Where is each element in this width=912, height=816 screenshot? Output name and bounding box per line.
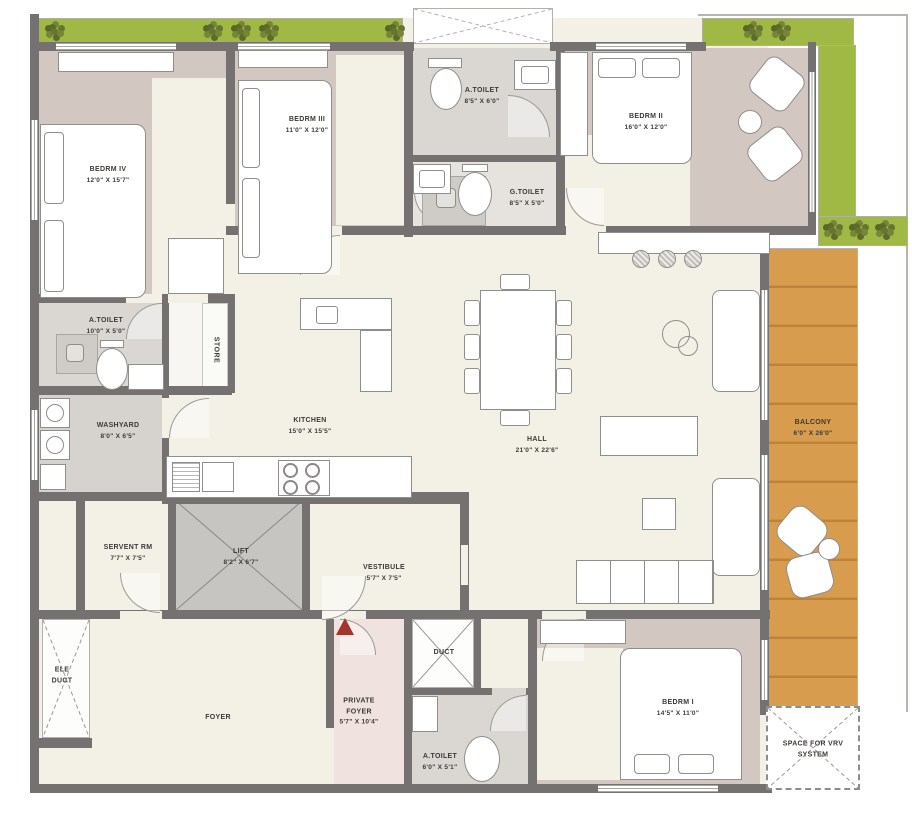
atoilet-bottom-label: A.TOILET 6'0" X 5'1" xyxy=(423,752,458,772)
window xyxy=(809,72,815,212)
door-gap xyxy=(168,294,208,303)
toilet xyxy=(458,172,492,216)
room-name: A.TOILET xyxy=(423,753,457,760)
plant-icon xyxy=(881,227,888,234)
room-dims: 5'7" X 10'4" xyxy=(331,718,387,728)
terrace-boundary-line xyxy=(906,15,908,712)
cross-lines xyxy=(414,9,552,43)
room-dims: 7'7" X 7'5" xyxy=(101,553,155,563)
planter-strip xyxy=(702,18,854,46)
atoilet-top-label: A.TOILET 8'5" X 6'0" xyxy=(465,86,500,106)
window xyxy=(761,455,768,590)
door-gap xyxy=(461,545,468,585)
toilet-tank xyxy=(428,58,462,68)
room-name: BEDRM I xyxy=(662,699,694,706)
vestibule-label: VESTIBULE 5'7" X 7'5" xyxy=(363,563,405,583)
room-name: WASHYARD xyxy=(97,422,140,429)
terrace-boundary-line xyxy=(698,14,908,16)
room-dims: 8'5" X 6'0" xyxy=(465,96,500,106)
room-dims: 5'7" X 7'5" xyxy=(363,573,405,583)
room-name: A.TOILET xyxy=(89,317,123,324)
sink xyxy=(128,364,164,390)
store-label: STORE xyxy=(213,337,220,364)
wall xyxy=(302,501,310,618)
dining-chair xyxy=(464,368,480,394)
dining-chair xyxy=(556,300,572,326)
wall xyxy=(76,492,85,620)
washer-drum xyxy=(46,436,64,454)
washer-drum xyxy=(46,404,64,422)
room-name: A.TOILET xyxy=(465,87,499,94)
room-dims: 6'0" X 26'0" xyxy=(794,428,833,438)
burner xyxy=(283,480,298,495)
room-dims: 12'0" X 15'7" xyxy=(87,175,130,185)
duct-label: DUCT xyxy=(434,648,455,659)
gtoilet-label: G.TOILET 8'5" X 5'0" xyxy=(510,188,545,208)
toilet xyxy=(430,68,462,110)
room-dims: 16'0" X 12'0" xyxy=(625,122,668,132)
window xyxy=(31,410,38,480)
pillow xyxy=(642,58,680,78)
pillow xyxy=(44,220,64,292)
lift-label: LIFT 8'2" X 6'7" xyxy=(224,547,259,567)
wardrobe xyxy=(168,238,224,294)
bar-stool xyxy=(684,250,702,268)
plant-icon xyxy=(51,28,58,35)
side-table xyxy=(738,110,762,134)
room-dims: 14'5" X 11'0" xyxy=(657,708,699,718)
tv-unit xyxy=(576,560,714,604)
dresser xyxy=(540,620,626,644)
room-dims: 8'5" X 5'0" xyxy=(510,198,545,208)
window xyxy=(596,43,686,50)
dining-chair xyxy=(556,334,572,360)
dining-table xyxy=(480,290,556,410)
ele-duct-label: ELE DUCT xyxy=(45,666,79,687)
balcony-deck xyxy=(766,248,858,708)
bedrm4-label: BEDRM IV 12'0" X 15'7" xyxy=(87,165,130,185)
room-name: LIFT xyxy=(233,548,249,555)
room-name: FOYER xyxy=(205,714,231,721)
private-foyer-label: PRIVATE FOYER 5'7" X 10'4" xyxy=(331,697,387,728)
burner xyxy=(283,463,298,478)
plant-icon xyxy=(829,227,836,234)
wall xyxy=(404,618,412,786)
sink xyxy=(412,696,438,732)
wall xyxy=(474,618,481,692)
foyer-label: FOYER xyxy=(205,713,231,724)
window xyxy=(56,43,176,50)
room-name: STORE xyxy=(213,337,220,364)
dining-chair xyxy=(464,300,480,326)
atoilet-left-label: A.TOILET 10'0" X 5'0" xyxy=(87,316,126,336)
room-dims: 6'0" X 5'1" xyxy=(423,762,458,772)
bar-stool xyxy=(658,250,676,268)
kitchen-cabinet xyxy=(360,330,392,392)
toilet xyxy=(464,736,500,782)
pillow xyxy=(44,132,64,204)
dining-chair xyxy=(556,368,572,394)
window xyxy=(761,290,768,420)
shower-head xyxy=(66,344,84,362)
plant-icon xyxy=(265,28,272,35)
balcony-table xyxy=(818,538,840,560)
kitchen-sink xyxy=(202,462,234,492)
room-dims: 8'0" X 6'5" xyxy=(97,431,140,441)
room-dims: 8'2" X 6'7" xyxy=(224,557,259,567)
room-name: ELE DUCT xyxy=(52,667,73,685)
bedrm3-label: BEDRM III 11'0" X 12'0" xyxy=(286,115,328,135)
door-gap xyxy=(542,611,586,619)
window xyxy=(761,640,768,700)
wall xyxy=(404,226,565,235)
room-dims: 21'0" X 22'6" xyxy=(516,445,559,455)
burner xyxy=(305,480,320,495)
room-dims: 10'0" X 5'0" xyxy=(87,326,126,336)
vrv-label: SPACE FOR VRV SYSTEM xyxy=(780,740,846,761)
wall xyxy=(168,501,176,618)
room-name: VESTIBULE xyxy=(363,564,405,571)
dining-chair xyxy=(500,274,530,290)
room-name: SERVENT RM xyxy=(104,544,153,551)
floor-plan: BEDRM IV 12'0" X 15'7" BEDRM III 11'0" X… xyxy=(0,0,912,816)
entry-arrow-icon xyxy=(336,618,354,635)
washyard-label: WASHYARD 8'0" X 6'5" xyxy=(97,421,140,441)
sofa xyxy=(712,290,760,392)
kitchen-label: KITCHEN 15'0" X 15'5" xyxy=(289,416,332,436)
room-name: BEDRM III xyxy=(289,116,325,123)
room-name: PRIVATE FOYER xyxy=(343,698,374,716)
dresser xyxy=(58,52,174,72)
burner xyxy=(305,463,320,478)
counter-sink xyxy=(316,306,338,324)
wardrobe xyxy=(560,52,588,156)
coffee-table xyxy=(600,416,698,456)
door-gap xyxy=(162,398,169,438)
bedrm3-rug xyxy=(336,55,406,225)
servant-label: SERVENT RM 7'7" X 7'5" xyxy=(101,543,155,563)
planter-strip xyxy=(38,18,403,45)
room-dims: 15'0" X 15'5" xyxy=(289,426,332,436)
dining-chair xyxy=(464,334,480,360)
wall xyxy=(30,492,170,501)
wall xyxy=(38,738,92,748)
bedrm1-rug xyxy=(537,648,623,780)
hall-label: HALL 21'0" X 22'6" xyxy=(516,435,559,455)
sink-basin xyxy=(521,66,549,84)
sink-drainboard xyxy=(172,462,200,492)
bedrm2-label: BEDRM II 16'0" X 12'0" xyxy=(625,112,668,132)
decor-circle xyxy=(678,336,698,356)
room-name: BALCONY xyxy=(795,419,832,426)
plant-icon xyxy=(209,28,216,35)
side-table xyxy=(642,498,676,530)
pillow xyxy=(242,178,260,258)
bar-stool xyxy=(632,250,650,268)
passage-floor xyxy=(169,303,202,387)
window xyxy=(238,43,330,50)
room-name: BEDRM IV xyxy=(90,166,127,173)
sofa xyxy=(712,478,760,576)
window xyxy=(31,120,38,220)
wall xyxy=(404,42,413,237)
open-duct xyxy=(413,8,553,44)
sink-basin xyxy=(419,170,445,188)
toilet-tank xyxy=(462,164,488,172)
pillow xyxy=(678,754,714,774)
bar-counter xyxy=(598,232,770,254)
door-gap xyxy=(492,688,526,695)
bedrm1-label: BEDRM I 14'5" X 11'0" xyxy=(657,698,699,718)
wall xyxy=(528,618,537,786)
plant-icon xyxy=(855,227,862,234)
window xyxy=(598,785,718,792)
dining-chair xyxy=(500,410,530,426)
planter-strip xyxy=(818,45,856,217)
wash-tub xyxy=(40,464,66,490)
room-name: SPACE FOR VRV SYSTEM xyxy=(783,741,843,759)
wall xyxy=(228,294,235,393)
pillow xyxy=(634,754,670,774)
room-name: KITCHEN xyxy=(293,417,326,424)
toilet xyxy=(96,348,128,390)
kitchen-counter xyxy=(300,298,392,330)
wall xyxy=(226,42,235,204)
room-name: G.TOILET xyxy=(510,189,545,196)
room-name: HALL xyxy=(527,436,547,443)
room-name: BEDRM II xyxy=(629,113,663,120)
toilet-tank xyxy=(100,340,124,348)
plant-icon xyxy=(749,28,756,35)
plant-icon xyxy=(391,28,398,35)
pillow xyxy=(598,58,636,78)
planter-strip xyxy=(818,216,908,246)
plant-icon xyxy=(777,28,784,35)
wall xyxy=(411,155,557,162)
pillow xyxy=(242,88,260,168)
wardrobe xyxy=(238,50,328,68)
plant-icon xyxy=(237,28,244,35)
balcony-label: BALCONY 6'0" X 26'0" xyxy=(794,418,833,438)
room-name: DUCT xyxy=(434,649,455,656)
room-dims: 11'0" X 12'0" xyxy=(286,125,328,135)
